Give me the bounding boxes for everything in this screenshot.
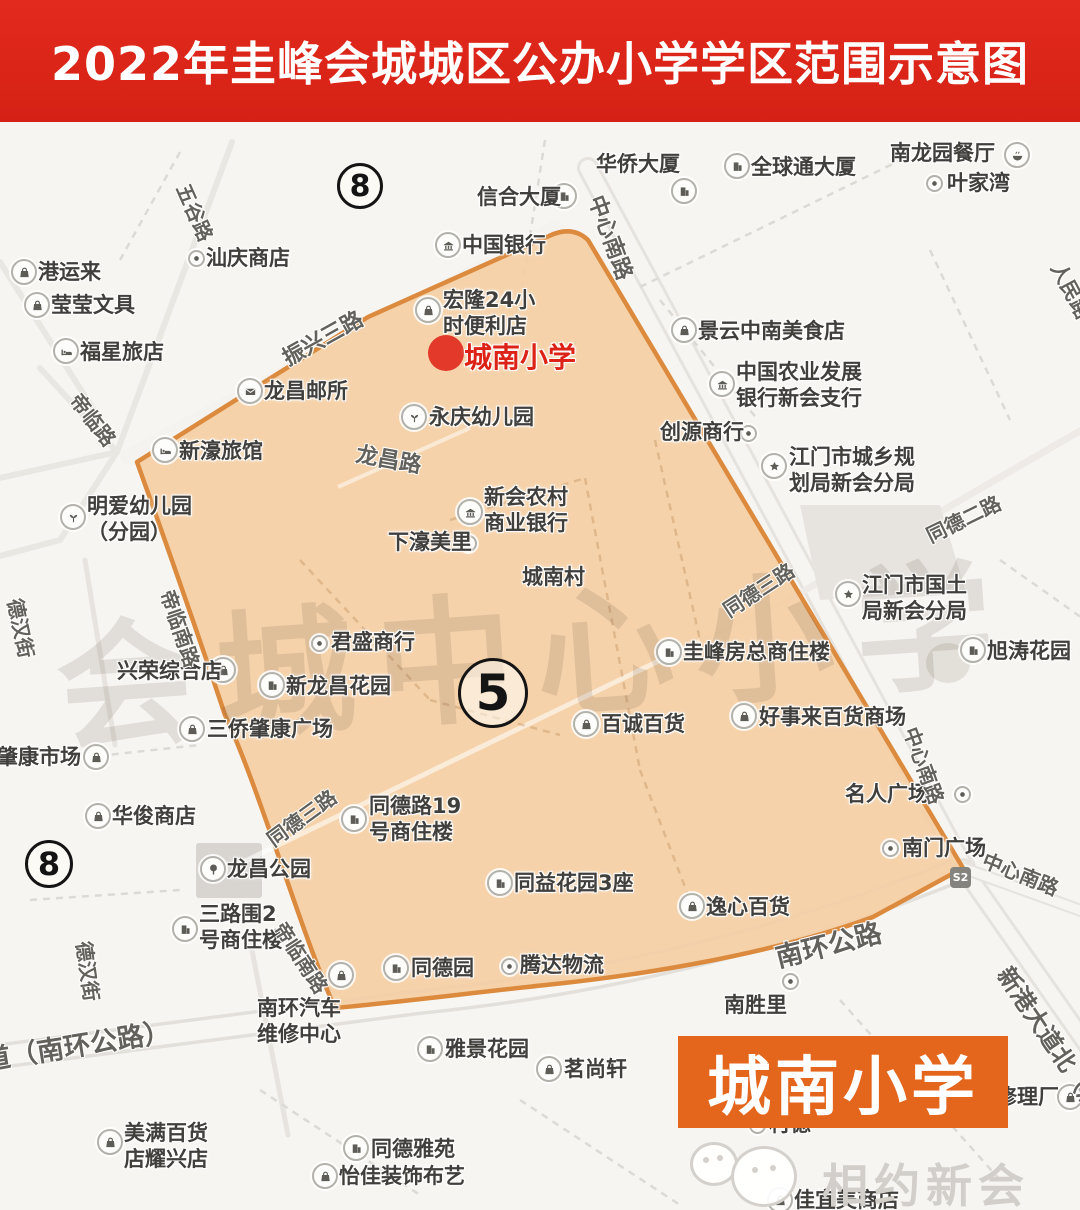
page-title: 2022年圭峰会城城区公办小学学区范围示意图 [51,28,1029,94]
school-district-map: 2022年圭峰会城城区公办小学学区范围示意图 [0,0,1080,1210]
school-location-marker [428,335,464,371]
wechat-logo [731,1146,797,1207]
school-name-badge: 城南小学 [678,1036,1008,1128]
brand-watermark: 相约新会 [822,1150,1030,1210]
title-banner: 2022年圭峰会城城区公办小学学区范围示意图 [0,0,1080,122]
park-block [196,843,262,898]
school-location-label: 城南小学 [464,336,576,376]
highway-s2-badge: S2 [950,867,971,888]
